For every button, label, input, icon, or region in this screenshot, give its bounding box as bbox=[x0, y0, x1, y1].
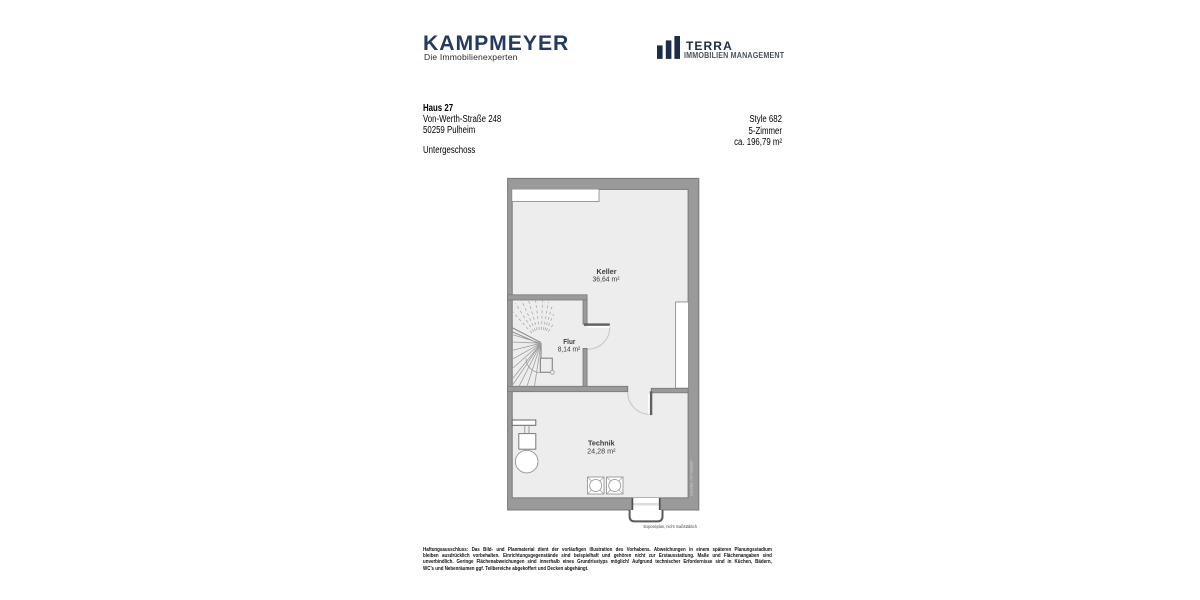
svg-text:24,28 m²: 24,28 m² bbox=[587, 446, 616, 455]
svg-text:Exposéplan, nicht maßstäblich: Exposéplan, nicht maßstäblich bbox=[689, 460, 693, 496]
svg-text:8,14 m²: 8,14 m² bbox=[558, 344, 581, 353]
svg-text:Exposéplan, nicht maßstäblich: Exposéplan, nicht maßstäblich bbox=[644, 524, 698, 529]
svg-text:36,64 m²: 36,64 m² bbox=[593, 275, 621, 284]
